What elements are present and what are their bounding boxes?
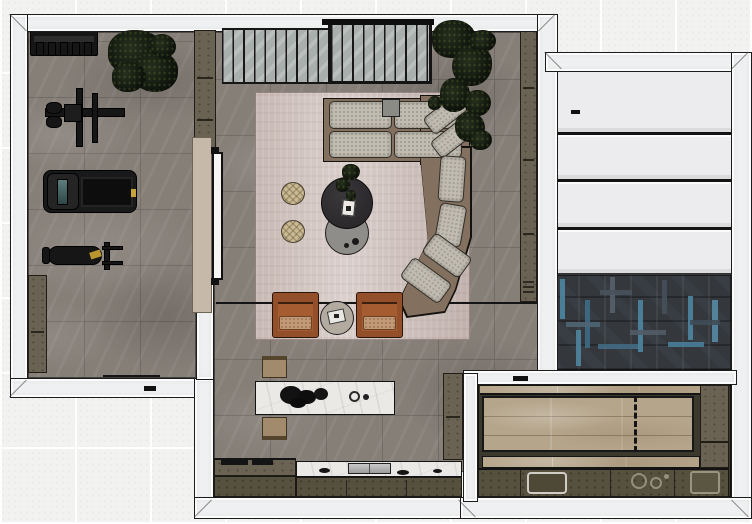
glass-leaf-cap — [211, 278, 219, 285]
sofa-cushion — [329, 131, 392, 158]
island-hob-dot — [363, 394, 369, 400]
gym-plant[interactable] — [106, 26, 178, 96]
gas-hob-ring[interactable] — [631, 473, 647, 489]
panel-mark — [571, 110, 580, 114]
rear-wood-counter[interactable] — [482, 396, 694, 452]
pouf[interactable] — [281, 182, 305, 205]
wall-kitchen-left — [463, 373, 478, 502]
table-decor-dot — [352, 238, 359, 245]
parquet-floor — [552, 275, 731, 370]
weight-machine[interactable] — [43, 88, 127, 147]
floorplan-canvas — [0, 0, 752, 524]
white-panel — [552, 182, 731, 230]
machine-weight-stack — [46, 116, 62, 128]
coffee-table-plant — [334, 160, 366, 208]
dumbbell — [36, 42, 44, 56]
cabinet-vent — [523, 281, 534, 283]
rear-kitchen — [478, 385, 731, 497]
wall-seam-line — [103, 375, 160, 377]
lounge-chair[interactable] — [356, 292, 403, 338]
chair-side-table[interactable] — [320, 301, 354, 335]
wall-bottom-main — [194, 497, 478, 519]
bench-crossbar — [102, 246, 123, 250]
rear-side-cabinet-low[interactable] — [700, 442, 729, 468]
counter-divider — [610, 470, 611, 497]
chair-cushion — [363, 316, 396, 330]
counter-divider — [674, 470, 675, 497]
interior-door[interactable] — [192, 137, 212, 313]
counter-divider — [520, 470, 521, 497]
bench-foot — [42, 247, 50, 264]
living-plant[interactable] — [424, 16, 504, 146]
wall-rightwing-top — [545, 52, 752, 72]
island-bench[interactable] — [262, 417, 287, 440]
counter-bowl — [397, 470, 409, 475]
dumbbell — [60, 42, 68, 56]
gas-hob-ring — [650, 477, 662, 489]
gym-cabinet-top[interactable] — [194, 30, 216, 148]
wall-gym-bottom — [10, 378, 214, 398]
cabinet-vent — [523, 286, 534, 288]
treadmill[interactable] — [43, 170, 137, 213]
wall-mark — [513, 376, 528, 381]
cooktop[interactable] — [348, 463, 391, 474]
gym-cabinet-left[interactable] — [28, 275, 47, 373]
wall-band-horizontal — [463, 370, 737, 385]
counter-bowl — [319, 468, 330, 473]
book-mark — [334, 314, 339, 318]
weight-bench[interactable] — [42, 242, 124, 270]
treadmill-logo — [131, 189, 136, 197]
treadmill-screen — [57, 179, 68, 205]
gas-hob-knob — [664, 474, 669, 479]
kitchen-cabinet-base — [296, 477, 462, 497]
bench-crossbar — [102, 261, 123, 265]
partition-top-rail — [322, 19, 434, 25]
wall-left — [10, 14, 28, 398]
wall-bottomright — [460, 497, 752, 519]
grill-plate — [252, 459, 273, 465]
machine-seat — [64, 104, 82, 122]
chair-cushion — [279, 316, 312, 330]
machine-column — [92, 93, 98, 143]
white-panel — [552, 62, 731, 135]
sofa-tray — [382, 99, 400, 117]
rear-top-strip — [480, 386, 720, 395]
sofa-cushion — [437, 155, 466, 203]
panel-room-floor — [552, 62, 731, 275]
second-basin[interactable] — [690, 471, 720, 494]
grill-plate — [221, 459, 248, 465]
rear-side-cabinet[interactable] — [700, 385, 729, 442]
island-decor — [278, 384, 336, 410]
wall-mark — [144, 386, 156, 391]
lounge-chair[interactable] — [272, 292, 319, 338]
white-panel — [552, 230, 731, 275]
machine-weight-stack — [46, 102, 62, 114]
kitchen-cabinet-base — [214, 476, 296, 497]
treadmill-belt — [81, 177, 133, 207]
wall-right — [731, 52, 752, 519]
rear-lower-strip — [482, 456, 700, 468]
white-panel — [552, 135, 731, 182]
dumbbell — [72, 42, 80, 56]
pouf[interactable] — [281, 220, 305, 243]
glass-leaf-cap — [211, 147, 219, 154]
table-decor-dot — [344, 243, 349, 248]
island-hob-ring — [349, 391, 360, 402]
kitchen-tall-cabinet[interactable] — [443, 373, 463, 460]
slatted-partition — [222, 28, 330, 84]
sliding-partition-track[interactable] — [634, 396, 637, 452]
wall-mid-vertical — [194, 378, 214, 502]
counter-bowl — [433, 469, 442, 473]
island-bench[interactable] — [262, 356, 287, 378]
glass-door-leaf[interactable] — [212, 152, 223, 280]
dumbbell — [48, 42, 56, 56]
slatted-partition-door[interactable] — [328, 22, 432, 84]
living-wall-cabinet[interactable] — [520, 28, 537, 302]
dumbbell — [84, 42, 92, 56]
cabinet-vent — [523, 291, 534, 293]
rear-sink[interactable] — [527, 472, 567, 494]
